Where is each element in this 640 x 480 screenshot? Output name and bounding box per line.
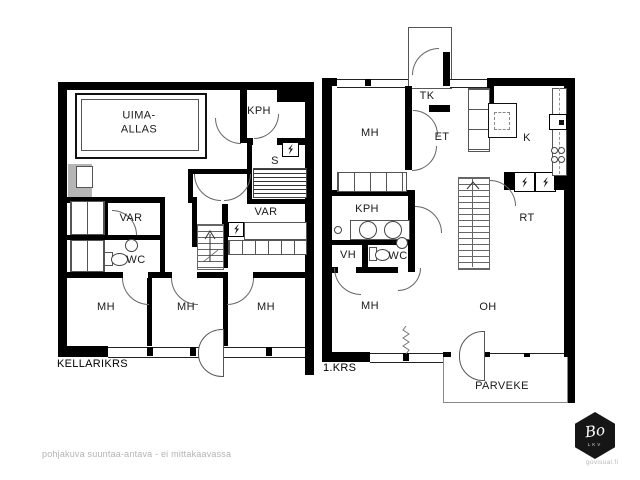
disclaimer-text: pohjakuva suuntaa-antava - ei mittakaava… — [42, 449, 231, 459]
brand-logo: Bo LKV — [575, 412, 615, 459]
faucet-icon — [559, 120, 564, 125]
wall — [58, 82, 67, 348]
room-label-mh3: MH — [257, 301, 275, 315]
room-label-vh: VH — [340, 249, 356, 263]
staircase — [458, 177, 490, 270]
wardrobe — [337, 172, 407, 192]
room-label-var-right: VAR — [254, 206, 277, 220]
tall-closet — [468, 88, 490, 152]
wall — [58, 82, 314, 90]
door-arc — [227, 278, 254, 305]
room-label-mh1: MH — [97, 301, 115, 315]
window-mullion — [266, 347, 272, 356]
wall — [405, 86, 412, 170]
wall — [443, 52, 450, 86]
window-mullion — [147, 347, 153, 356]
window-band — [450, 79, 487, 88]
wall — [188, 169, 193, 203]
room-label-wc: WC — [126, 254, 145, 268]
room-label-tk: TK — [420, 90, 435, 104]
window-mullion — [403, 353, 409, 361]
window-mullion — [365, 79, 371, 86]
electric-panel-icon — [228, 222, 244, 237]
room-label-et: ET — [435, 131, 450, 145]
floor-label-basement: KELLARIKRS — [57, 358, 128, 370]
wall — [322, 78, 332, 362]
room-label-sauna: S — [271, 155, 279, 169]
brand-logo-sub: LKV — [588, 442, 603, 447]
room-label-mh2: MH — [177, 301, 195, 315]
wall — [356, 267, 398, 273]
room-label-pool: UIMA- ALLAS — [121, 109, 157, 137]
sauna-benches — [253, 168, 307, 198]
sauna-heater-icon — [282, 142, 299, 157]
door-arc — [215, 118, 241, 144]
lightning-icon — [286, 144, 295, 155]
closet — [70, 201, 105, 235]
door-arc — [415, 206, 442, 233]
partition-zigzag — [402, 326, 410, 354]
room-label-k: K — [523, 132, 531, 146]
floor-drain-icon — [334, 226, 342, 234]
brand-website: govisual.fi — [586, 459, 618, 466]
window-mullion — [190, 347, 196, 356]
room-label-mh-top: MH — [361, 127, 379, 141]
sink-icon — [125, 239, 138, 252]
wall — [429, 105, 450, 112]
floor-label-first: 1.KRS — [323, 362, 356, 374]
exterior-door-arc — [198, 329, 224, 377]
room-label-var-left: VAR — [119, 212, 142, 226]
appliance-icon — [514, 172, 535, 192]
lightning-icon — [541, 177, 550, 188]
wall — [332, 352, 370, 362]
door-arc — [412, 146, 437, 171]
window-band — [337, 79, 408, 88]
room-label-kph: KPH — [355, 203, 379, 217]
lightning-icon — [232, 224, 241, 235]
brand-logo-text: Bo — [584, 423, 606, 441]
wall — [67, 272, 123, 278]
room-label-kph: KPH — [247, 105, 271, 119]
wall — [247, 199, 314, 204]
floorplan-canvas: UIMA- ALLAS KPH S VAR VAR WC MH MH MH KE… — [0, 0, 640, 480]
room-label-rt: RT — [519, 212, 534, 226]
wall — [253, 272, 314, 278]
sink-icon — [359, 221, 377, 239]
fireplace-hatch — [76, 166, 93, 188]
chimney-flue — [494, 112, 510, 130]
door-arc — [122, 278, 149, 305]
room-label-mh-bottom: MH — [361, 300, 379, 314]
door-arc — [194, 174, 221, 201]
stairs-up-arrow-icon — [200, 226, 220, 266]
room-label-wc: WC — [388, 250, 407, 264]
wall — [487, 78, 575, 86]
room-label-oh: OH — [479, 301, 496, 315]
stove-icon — [550, 145, 565, 165]
room-label-parveke: PARVEKE — [475, 380, 529, 394]
wall — [240, 90, 247, 143]
lightning-icon — [520, 177, 529, 188]
door-arc — [334, 268, 361, 295]
closet — [70, 240, 105, 272]
door-arc — [398, 268, 421, 291]
stairs-up-arrow-icon — [465, 180, 481, 190]
stair-rail — [472, 178, 473, 267]
wall — [58, 346, 108, 357]
shelf — [228, 240, 307, 255]
sink-icon — [396, 237, 408, 249]
shelf — [244, 222, 307, 240]
kitchen-sink-icon — [549, 114, 567, 130]
